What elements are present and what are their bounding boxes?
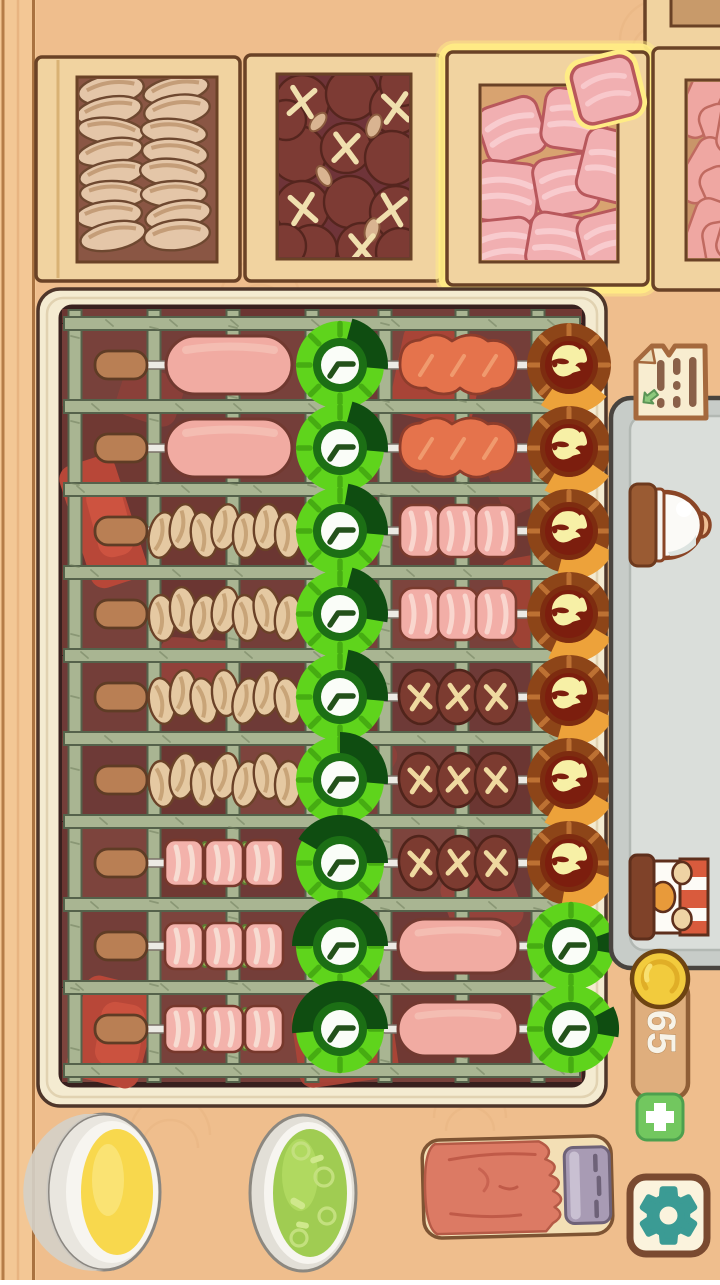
svg-text:65: 65 [639, 1010, 683, 1055]
